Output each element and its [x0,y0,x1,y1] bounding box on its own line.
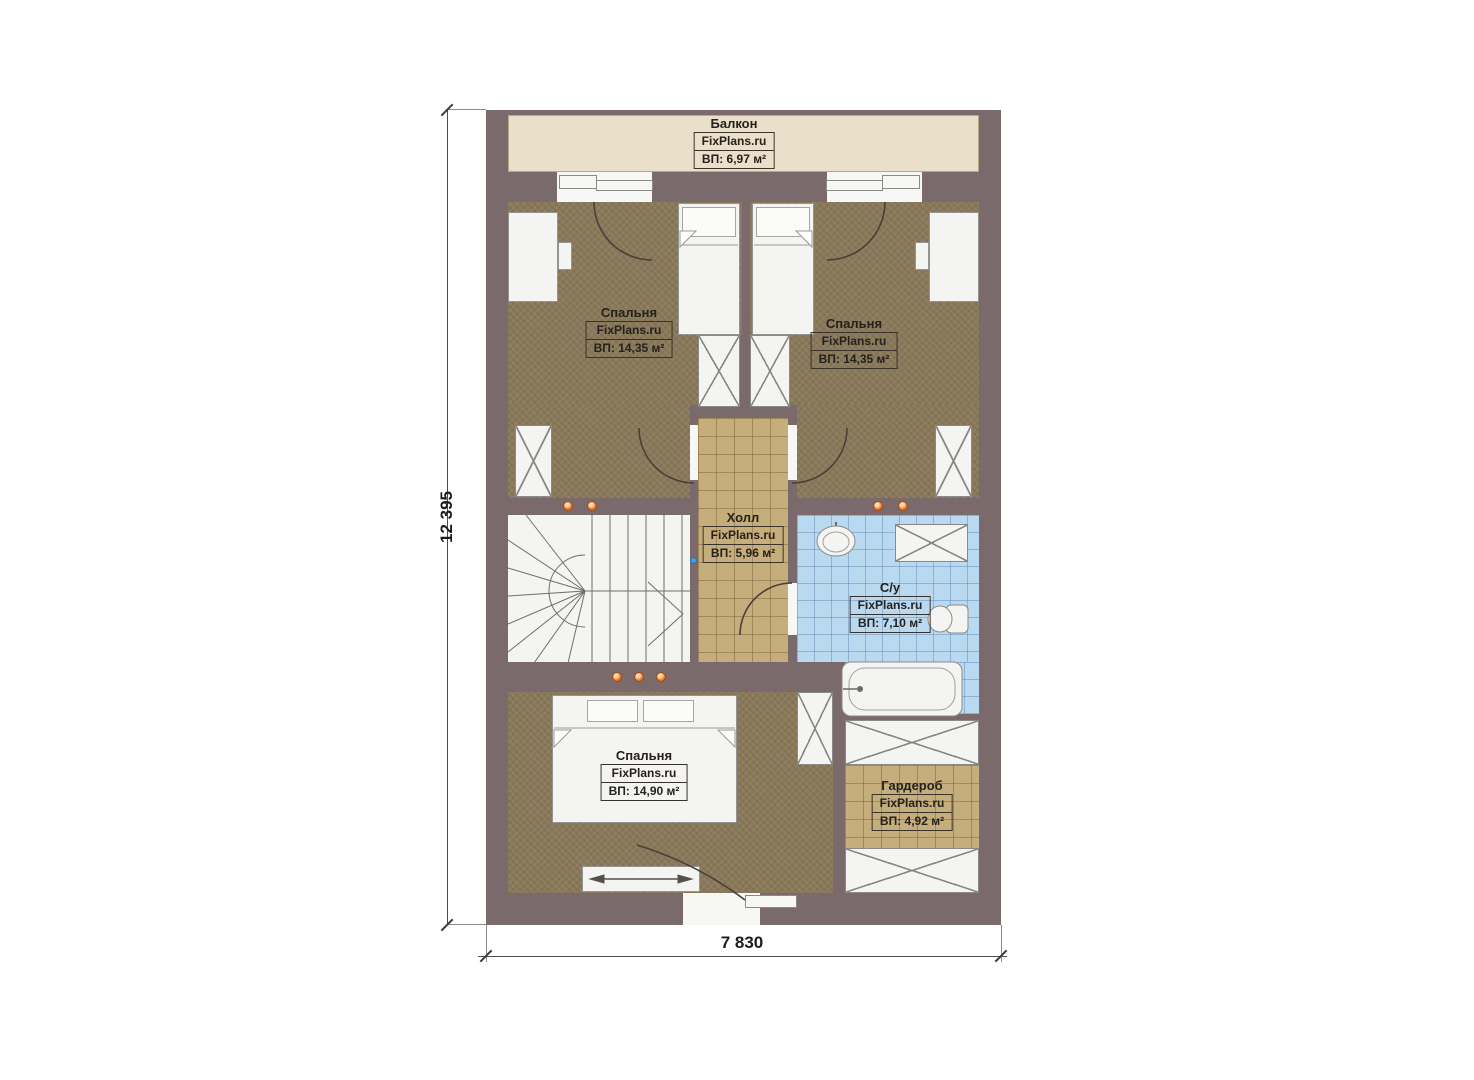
wall-light-dot [873,501,883,511]
wall-light-dot [563,501,573,511]
wall-light-dot [612,672,622,682]
dimension-label-width: 7 830 [662,933,822,953]
brand-watermark: FixPlans.ru [587,322,672,339]
wall-below-stairs [508,662,845,692]
pillow-icon [643,700,694,722]
room-label-bedroom-right: Спальня FixPlans.ru ВП: 14,35 м² [811,316,898,369]
room-title: Спальня [826,316,882,331]
brand-watermark: FixPlans.ru [704,527,783,544]
room-area: ВП: 5,96 м² [704,544,783,562]
room-label-balcony: Балкон FixPlans.ru ВП: 6,97 м² [694,116,775,169]
brand-watermark: FixPlans.ru [695,133,774,150]
wardrobe-cabinet-right-icon [935,425,972,497]
marker-dot [690,557,697,564]
wall-light-dot [634,672,644,682]
room-info-box: FixPlans.ru ВП: 14,35 м² [811,332,898,369]
staircase [508,515,690,662]
dresser-icon [582,866,700,892]
balcony-door-right-leaf [826,180,883,191]
room-area: ВП: 14,90 м² [602,782,687,800]
dimension-extension [447,109,486,110]
room-info-box: FixPlans.ru ВП: 6,97 м² [694,132,775,169]
desk-left-icon [508,212,558,302]
wardrobe-top-cabinet-icon [845,720,979,765]
pillow-icon [587,700,638,722]
bathroom-cabinet-icon [895,524,968,562]
room-area: ВП: 7,10 м² [851,614,930,632]
wall-right [979,110,1001,925]
pillow-icon [682,207,736,237]
bathroom-door-opening [788,583,797,635]
room-info-box: FixPlans.ru ВП: 14,35 м² [586,321,673,358]
wall-hall-top [690,407,797,418]
room-info-box: FixPlans.ru ВП: 7,10 м² [850,596,931,633]
floor-plan-page: Балкон FixPlans.ru ВП: 6,97 м² Спальня F… [0,0,1474,1080]
wall-between-bedrooms [742,172,750,340]
brand-watermark: FixPlans.ru [873,795,952,812]
brand-watermark: FixPlans.ru [812,333,897,350]
wall-above-stairs [508,498,690,515]
wall-left [486,110,508,925]
wall-light-dot [656,672,666,682]
brand-watermark: FixPlans.ru [851,597,930,614]
hall-door-right-opening [788,425,797,480]
chair-left-icon [558,242,572,270]
chair-right-icon [915,242,929,270]
room-title: Балкон [711,116,758,131]
entry-door-leaf [745,895,797,908]
room-label-wardrobe: Гардероб FixPlans.ru ВП: 4,92 м² [872,778,953,831]
room-label-bedroom-left: Спальня FixPlans.ru ВП: 14,35 м² [586,305,673,358]
master-closet-icon [797,692,833,765]
room-label-hall: Холл FixPlans.ru ВП: 5,96 м² [703,510,784,563]
wall-between-closets [740,335,750,407]
wall-master-wardrobe [833,692,845,893]
room-area: ВП: 4,92 м² [873,812,952,830]
room-title: Спальня [601,305,657,320]
hall-door-left-opening [690,425,698,480]
room-info-box: FixPlans.ru ВП: 14,90 м² [601,764,688,801]
wardrobe-bottom-cabinet-icon [845,848,979,893]
room-title: С/у [880,580,900,595]
bathtub-alcove-floor [845,662,979,718]
wall-light-dot [898,501,908,511]
balcony-door-right-frame [882,175,920,189]
room-area: ВП: 14,35 м² [812,350,897,368]
wall-top [486,110,1001,115]
balcony-door-left-frame [559,175,597,189]
room-title: Гардероб [881,778,942,793]
room-area: ВП: 6,97 м² [695,150,774,168]
closet-right-icon [750,335,790,407]
balcony-door-left-leaf [596,180,653,191]
floor-plan: Балкон FixPlans.ru ВП: 6,97 м² Спальня F… [486,110,1001,925]
wall-above-bathroom [797,498,979,515]
closet-left-icon [698,335,740,407]
dimension-extension [447,924,486,925]
room-title: Холл [727,510,760,525]
room-area: ВП: 14,35 м² [587,339,672,357]
wardrobe-cabinet-left-icon [515,425,552,497]
wall-light-dot [587,501,597,511]
room-info-box: FixPlans.ru ВП: 5,96 м² [703,526,784,563]
room-label-bathroom: С/у FixPlans.ru ВП: 7,10 м² [850,580,931,633]
room-label-bedroom-master: Спальня FixPlans.ru ВП: 14,90 м² [601,748,688,801]
desk-right-icon [929,212,979,302]
pillow-icon [756,207,810,237]
room-info-box: FixPlans.ru ВП: 4,92 м² [872,794,953,831]
dimension-label-height: 12 395 [437,465,457,569]
brand-watermark: FixPlans.ru [602,765,687,782]
dimension-line-horizontal [478,956,1007,957]
room-title: Спальня [616,748,672,763]
